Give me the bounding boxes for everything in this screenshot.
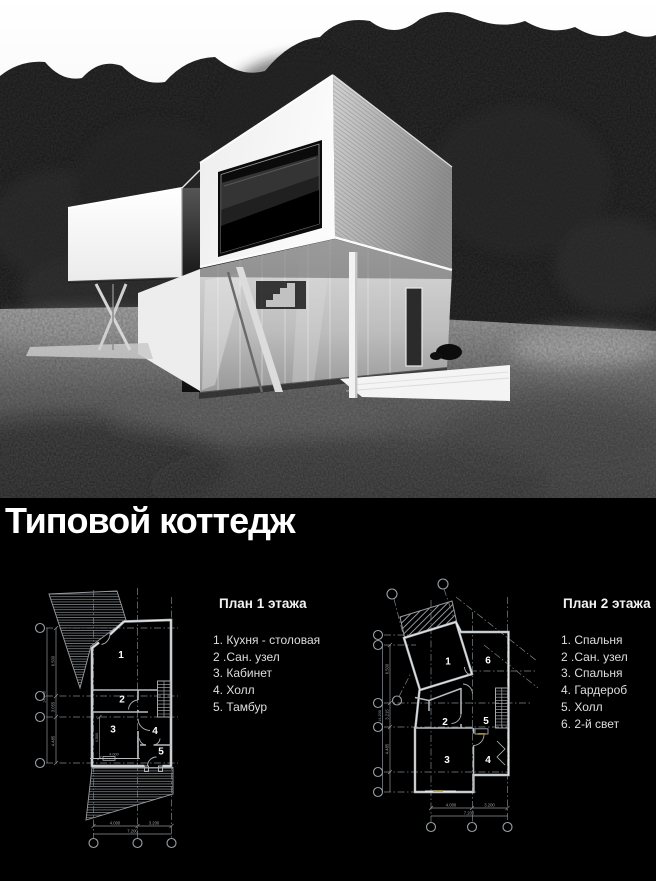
room-number: 3 (110, 725, 116, 736)
dim-mark (478, 733, 486, 735)
dimension-lines (383, 643, 510, 816)
plan-2-legend: 1. Спальня 2 .Сан. узел 3. Спальня 4. Га… (561, 632, 628, 732)
room-number: 5 (158, 747, 164, 758)
room-number: 6 (485, 656, 491, 667)
dim-label: 3.200 (149, 821, 160, 826)
dim-label: 14.040 (43, 691, 47, 703)
page-title: Типовой коттедж (5, 500, 295, 542)
dim-label: 7.200 (127, 829, 138, 834)
legend-item: 3. Спальня (561, 665, 628, 682)
dim-label: 6.500 (51, 655, 56, 666)
room-number: 1 (118, 650, 124, 661)
dim-label: 4.485 (51, 735, 56, 746)
interior-walls (415, 688, 488, 792)
room-number: 3 (444, 755, 450, 766)
plan-2-heading: План 2 этажа (563, 596, 651, 611)
room-number: 1 (445, 657, 451, 668)
legend-item: 2 .Сан. узел (213, 649, 320, 666)
roof-hatch-bottom (86, 768, 173, 821)
doors (102, 635, 163, 772)
architectural-render (0, 0, 656, 498)
legend-item: 3. Кабинет (213, 665, 320, 682)
legend-item: 4. Гардероб (561, 682, 628, 699)
plan-1-legend: 1. Кухня - столовая 2 .Сан. узел 3. Каби… (213, 632, 320, 716)
dim-label: 4.485 (385, 743, 390, 754)
stairs (496, 688, 509, 765)
dim-label: 7.200 (464, 811, 475, 816)
legend-item: 2 .Сан. узел (561, 649, 628, 666)
dim-label: 4.500 (95, 733, 99, 743)
legend-item: 5. Тамбур (213, 699, 320, 716)
legend-item: 1. Спальня (561, 632, 628, 649)
dim-label: 6.500 (385, 663, 390, 674)
outer-walls (92, 620, 171, 766)
room-number: 4 (152, 726, 158, 737)
poster-page: Типовой коттедж (0, 0, 656, 881)
dim-label: 14.200 (378, 710, 382, 722)
floor-plan-2-drawing: 1 2 3 4 5 6 6.500 3.215 4.485 14.200 4.0… (360, 578, 545, 840)
stairs (158, 681, 171, 717)
roof-hatch-top (49, 591, 126, 688)
outer-walls (404, 622, 509, 792)
legend-item: 4. Холл (213, 682, 320, 699)
room-number: 2 (442, 717, 448, 728)
room-number: 5 (483, 716, 489, 727)
dim-label: 3.200 (484, 803, 495, 808)
floor-plan-1-drawing: 1 2 3 4 5 6.500 3.055 4.485 14.040 4.500… (0, 578, 210, 858)
legend-item: 1. Кухня - столовая (213, 632, 320, 649)
dim-label: 4.000 (110, 821, 121, 826)
dim-label: 4.000 (109, 753, 119, 757)
room-number: 4 (485, 755, 491, 766)
dim-mark (433, 790, 443, 792)
dim-label: 3.055 (51, 701, 56, 712)
plan-1-heading: План 1 этажа (219, 596, 307, 611)
dim-label: 3.215 (385, 709, 390, 720)
room-number: 2 (119, 695, 125, 706)
legend-item: 5. Холл (561, 699, 628, 716)
ground-floor-glass (200, 239, 452, 393)
legend-item: 6. 2-й свет (561, 716, 628, 733)
dim-label: 4.000 (446, 803, 457, 808)
entry-door (406, 288, 422, 366)
